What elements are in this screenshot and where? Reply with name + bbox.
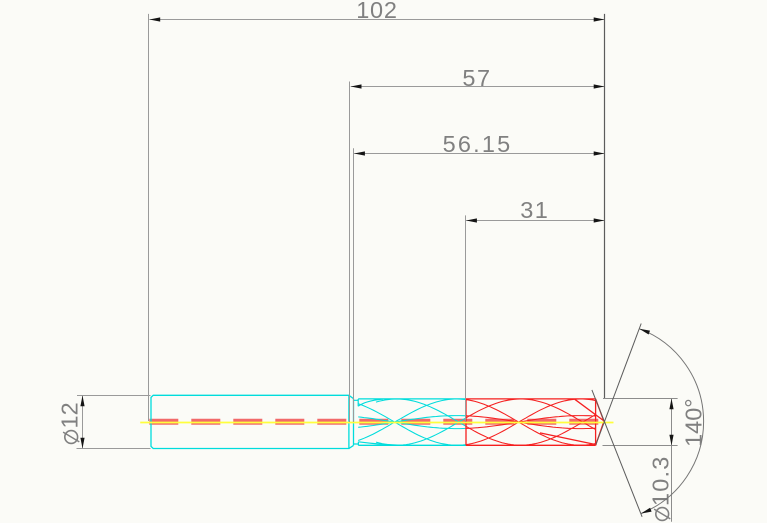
svg-text:31: 31: [520, 197, 549, 223]
svg-text:57: 57: [462, 65, 491, 91]
svg-text:10.3: 10.3: [648, 455, 674, 506]
svg-text:102: 102: [356, 0, 398, 23]
svg-text:56.15: 56.15: [443, 131, 513, 157]
svg-text:12: 12: [57, 402, 83, 428]
svg-text:140°: 140°: [681, 398, 707, 447]
